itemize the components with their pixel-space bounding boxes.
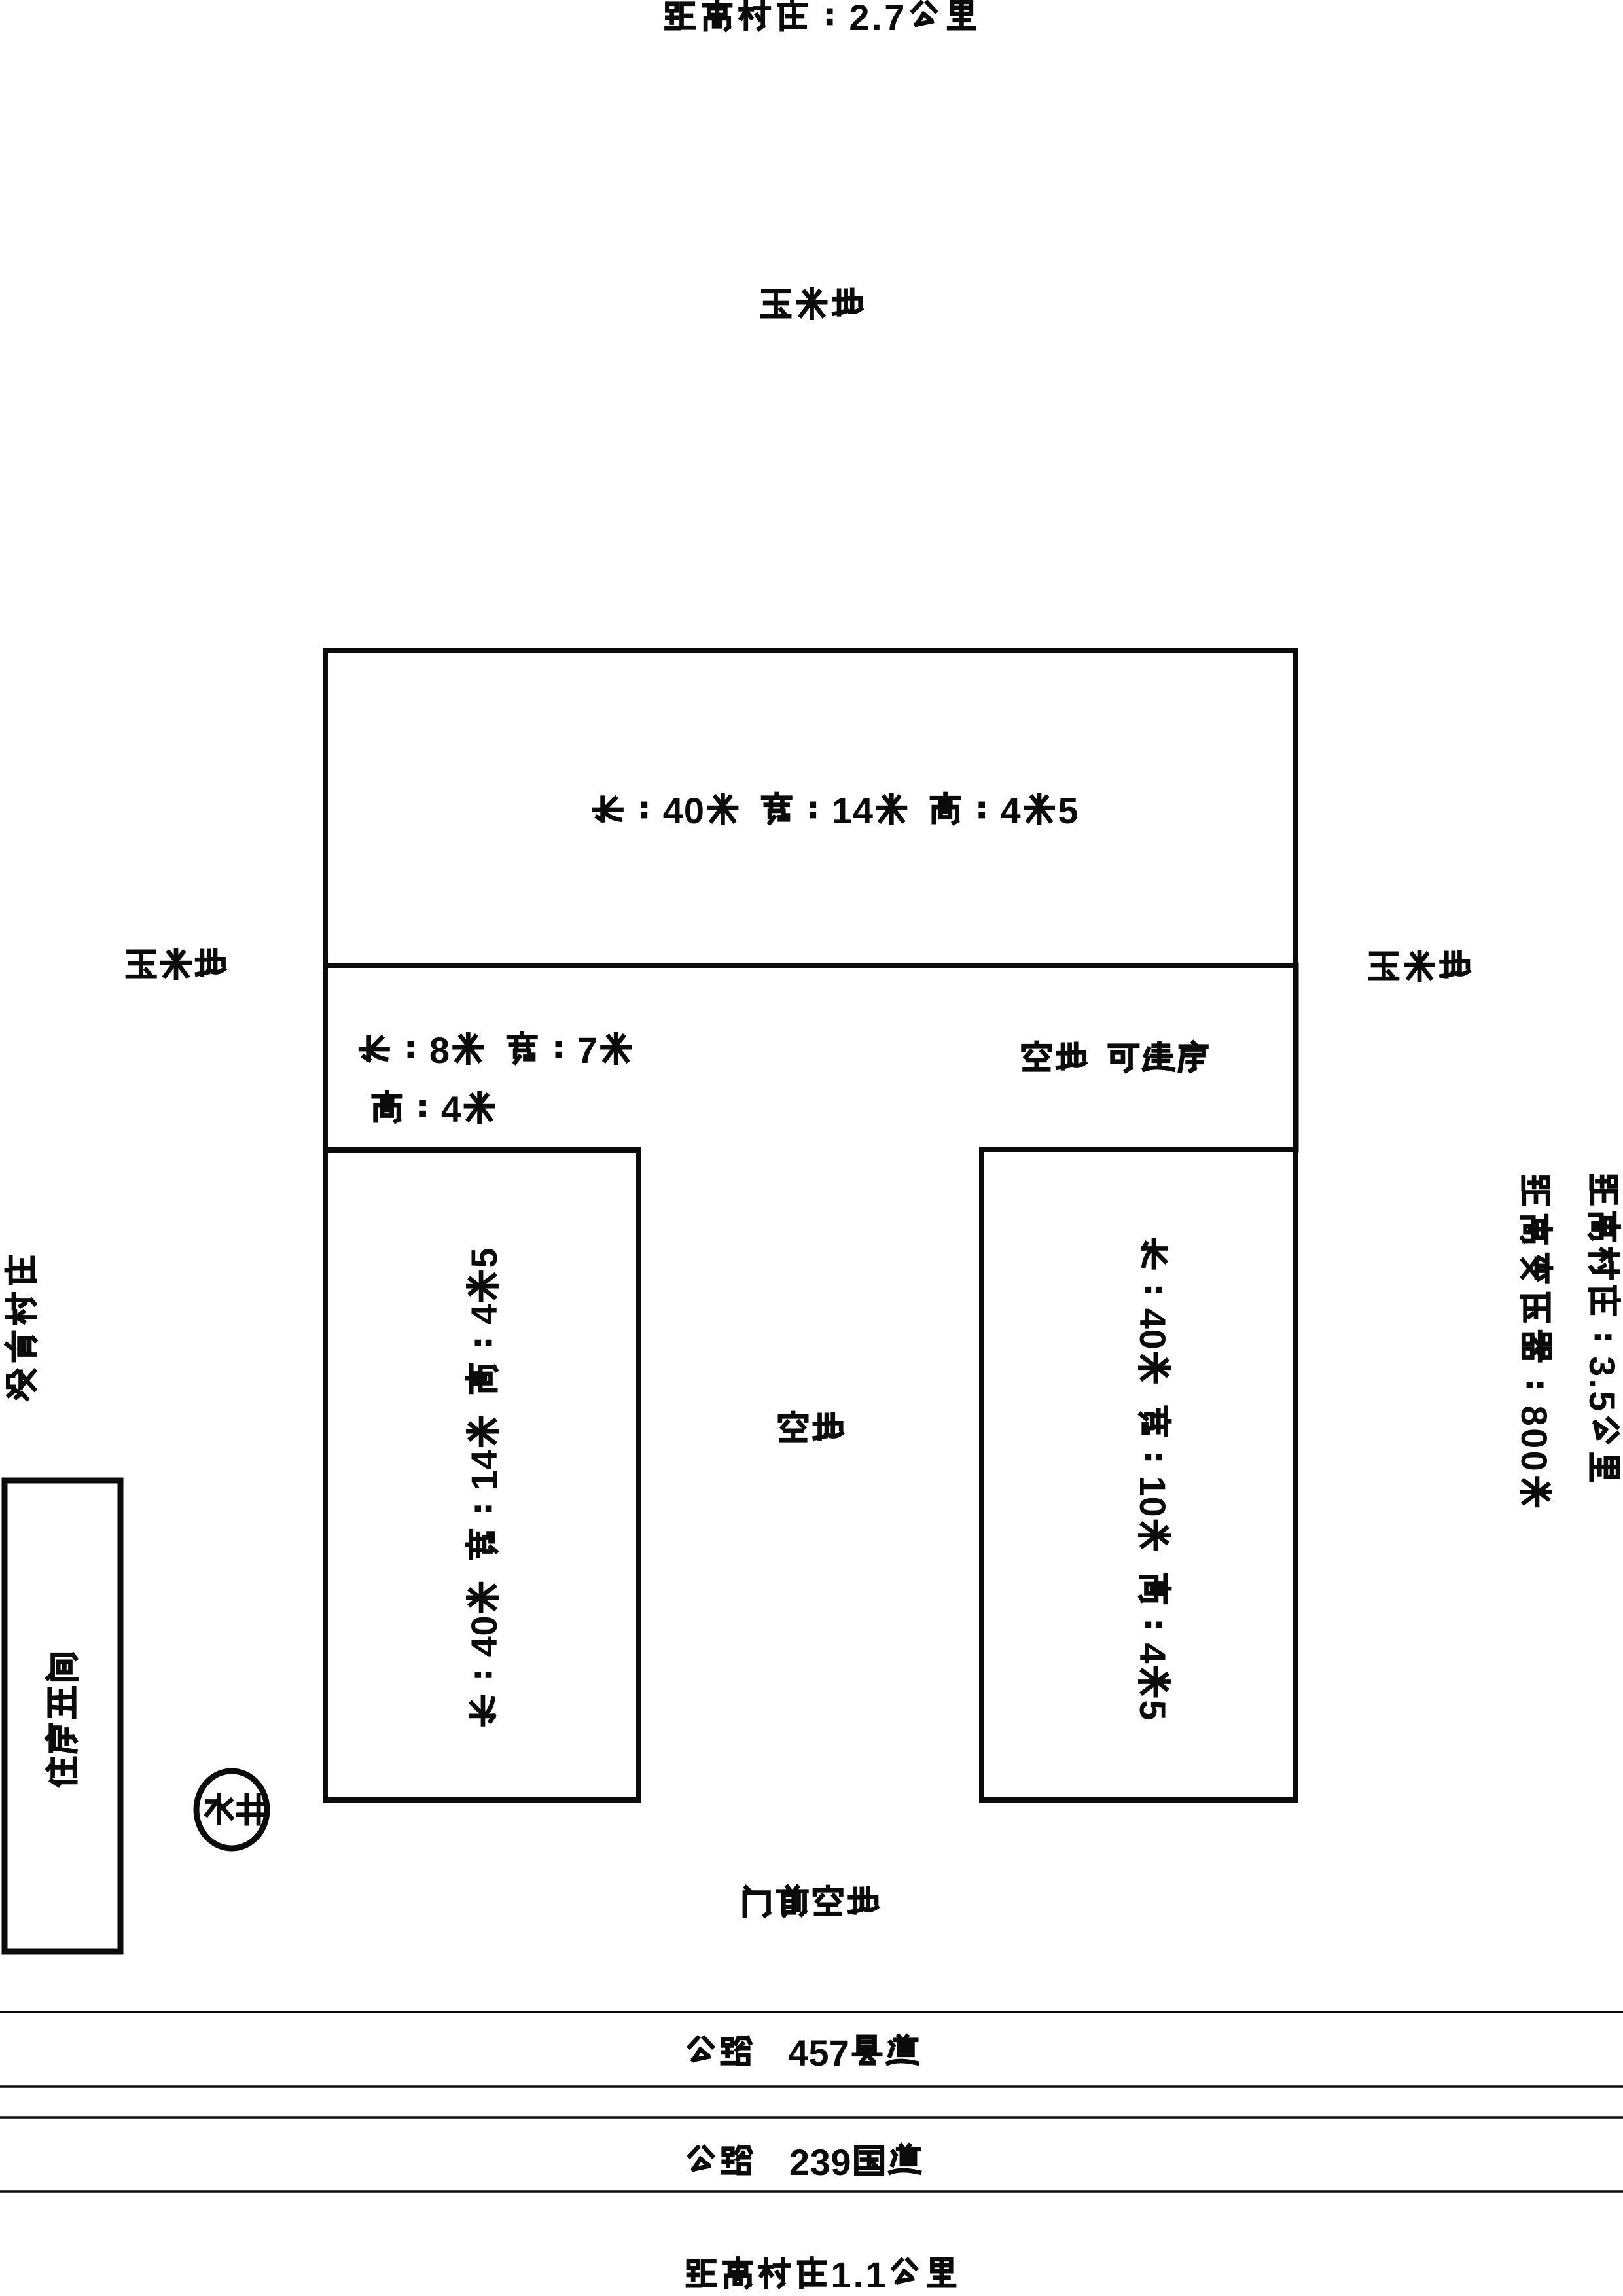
svg-text:.: .	[853, 2254, 864, 2295]
svg-text:4: 4	[463, 1304, 505, 1325]
svg-text:0: 0	[463, 1615, 505, 1636]
svg-text:4: 4	[1132, 1643, 1173, 1663]
svg-text:4: 4	[441, 1088, 461, 1130]
svg-text:0: 0	[1514, 1451, 1555, 1471]
svg-text:4: 4	[663, 790, 683, 831]
svg-text:4: 4	[853, 790, 873, 831]
svg-text:2: 2	[849, 0, 869, 38]
svg-text:1: 1	[865, 2254, 885, 2295]
svg-text:5: 5	[1132, 1700, 1173, 1720]
svg-text:5: 5	[1582, 1391, 1623, 1411]
svg-text:4: 4	[788, 2032, 808, 2073]
svg-text:8: 8	[1514, 1406, 1555, 1426]
svg-text:5: 5	[1058, 790, 1078, 831]
svg-text:4: 4	[1001, 790, 1021, 831]
svg-text:1: 1	[830, 2254, 851, 2295]
svg-text:1: 1	[463, 1470, 505, 1490]
svg-text:5: 5	[808, 2032, 829, 2073]
svg-text:.: .	[1582, 1378, 1623, 1389]
svg-text:1: 1	[832, 790, 852, 831]
svg-text:7: 7	[577, 1030, 597, 1071]
svg-text:4: 4	[1132, 1308, 1173, 1329]
svg-text:7: 7	[884, 0, 904, 38]
svg-text:9: 9	[830, 2142, 851, 2183]
svg-text:8: 8	[429, 1030, 450, 1071]
svg-text:4: 4	[463, 1450, 505, 1470]
svg-text:.: .	[872, 0, 882, 38]
svg-text:2: 2	[789, 2142, 810, 2183]
svg-text:3: 3	[810, 2142, 830, 2183]
svg-text:3: 3	[1582, 1356, 1623, 1376]
svg-text:4: 4	[463, 1636, 505, 1657]
svg-text:0: 0	[684, 790, 704, 831]
svg-text:0: 0	[1132, 1329, 1173, 1350]
svg-text:1: 1	[1132, 1476, 1173, 1496]
svg-text:5: 5	[463, 1247, 505, 1268]
svg-text:7: 7	[829, 2032, 849, 2073]
svg-text:0: 0	[1514, 1428, 1555, 1448]
svg-text:0: 0	[1132, 1497, 1173, 1517]
